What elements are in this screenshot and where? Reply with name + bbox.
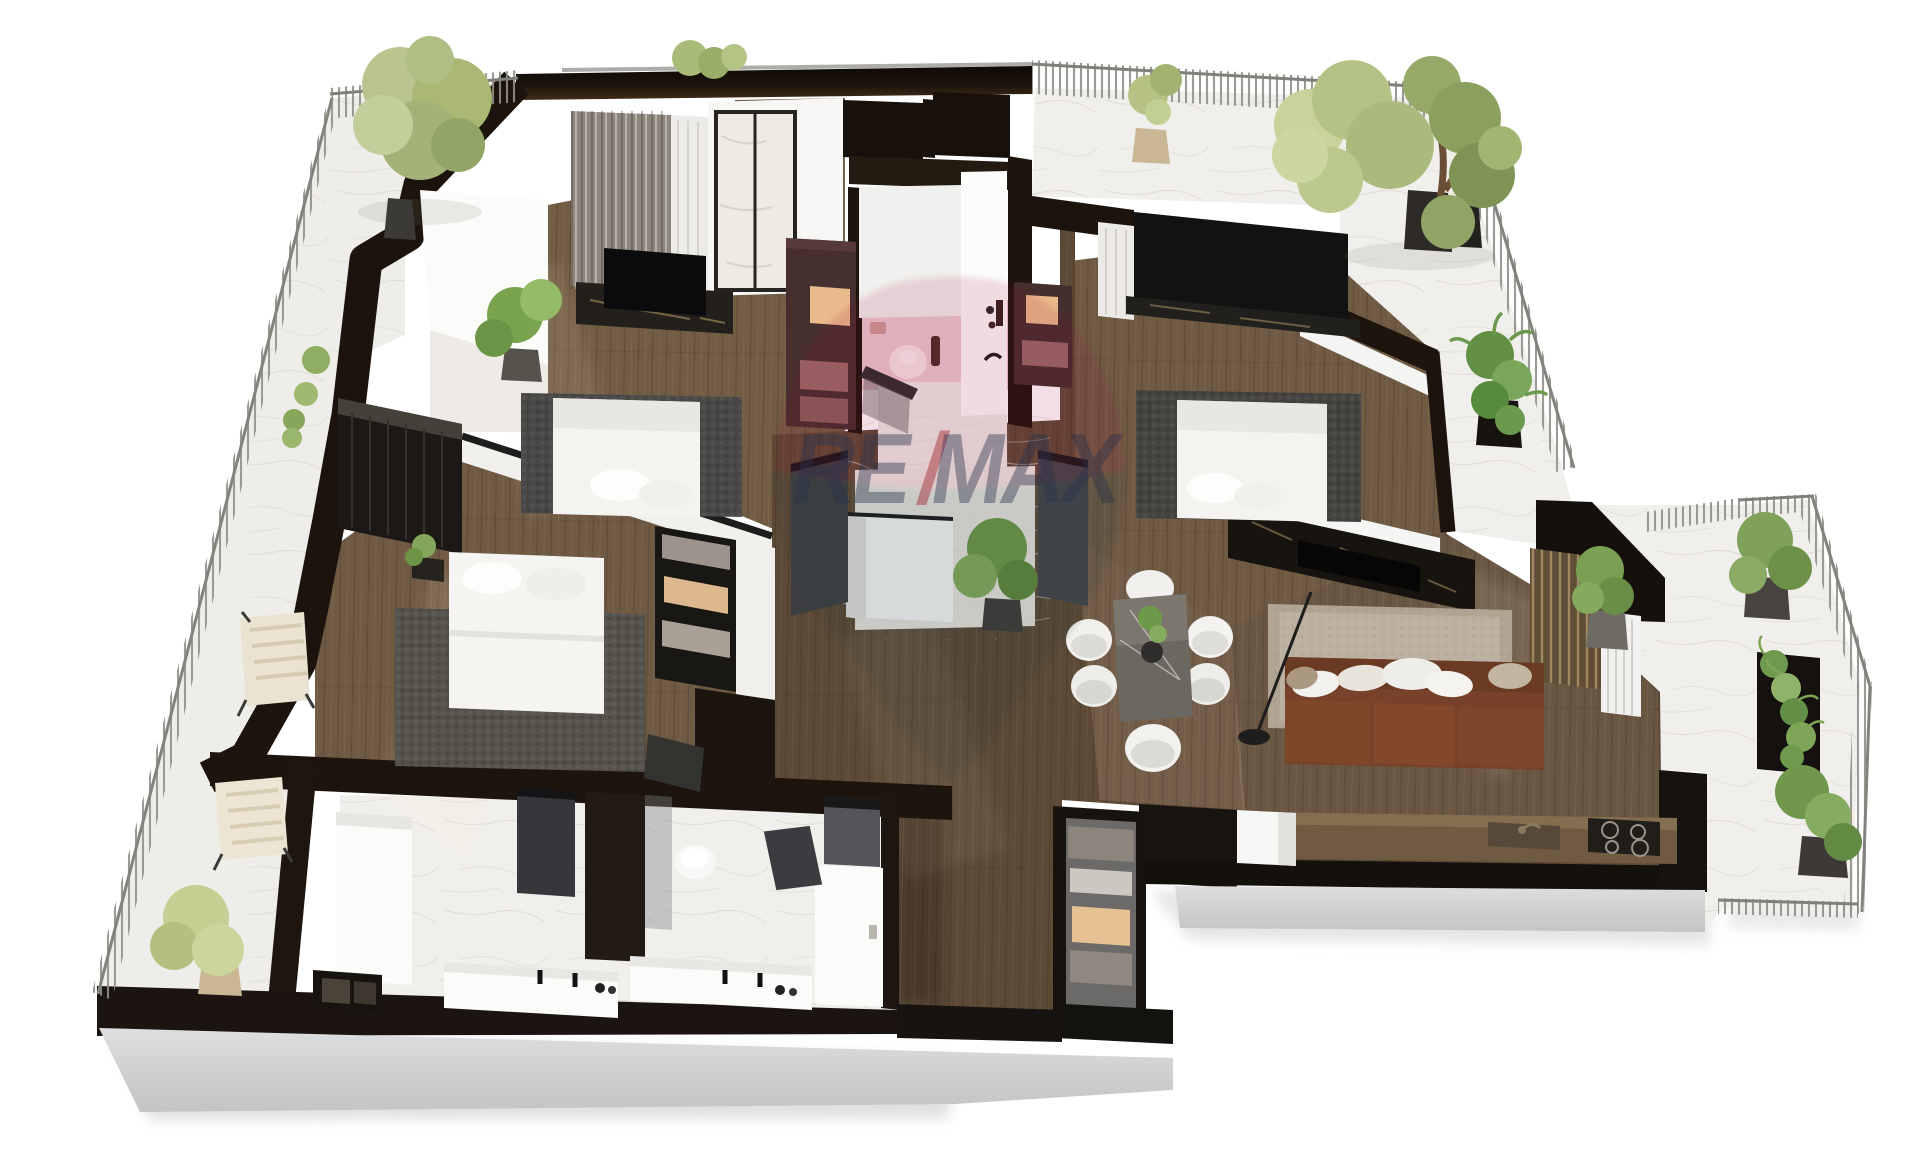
svg-text:RE: RE bbox=[785, 413, 918, 525]
svg-text:MAX: MAX bbox=[924, 413, 1130, 525]
